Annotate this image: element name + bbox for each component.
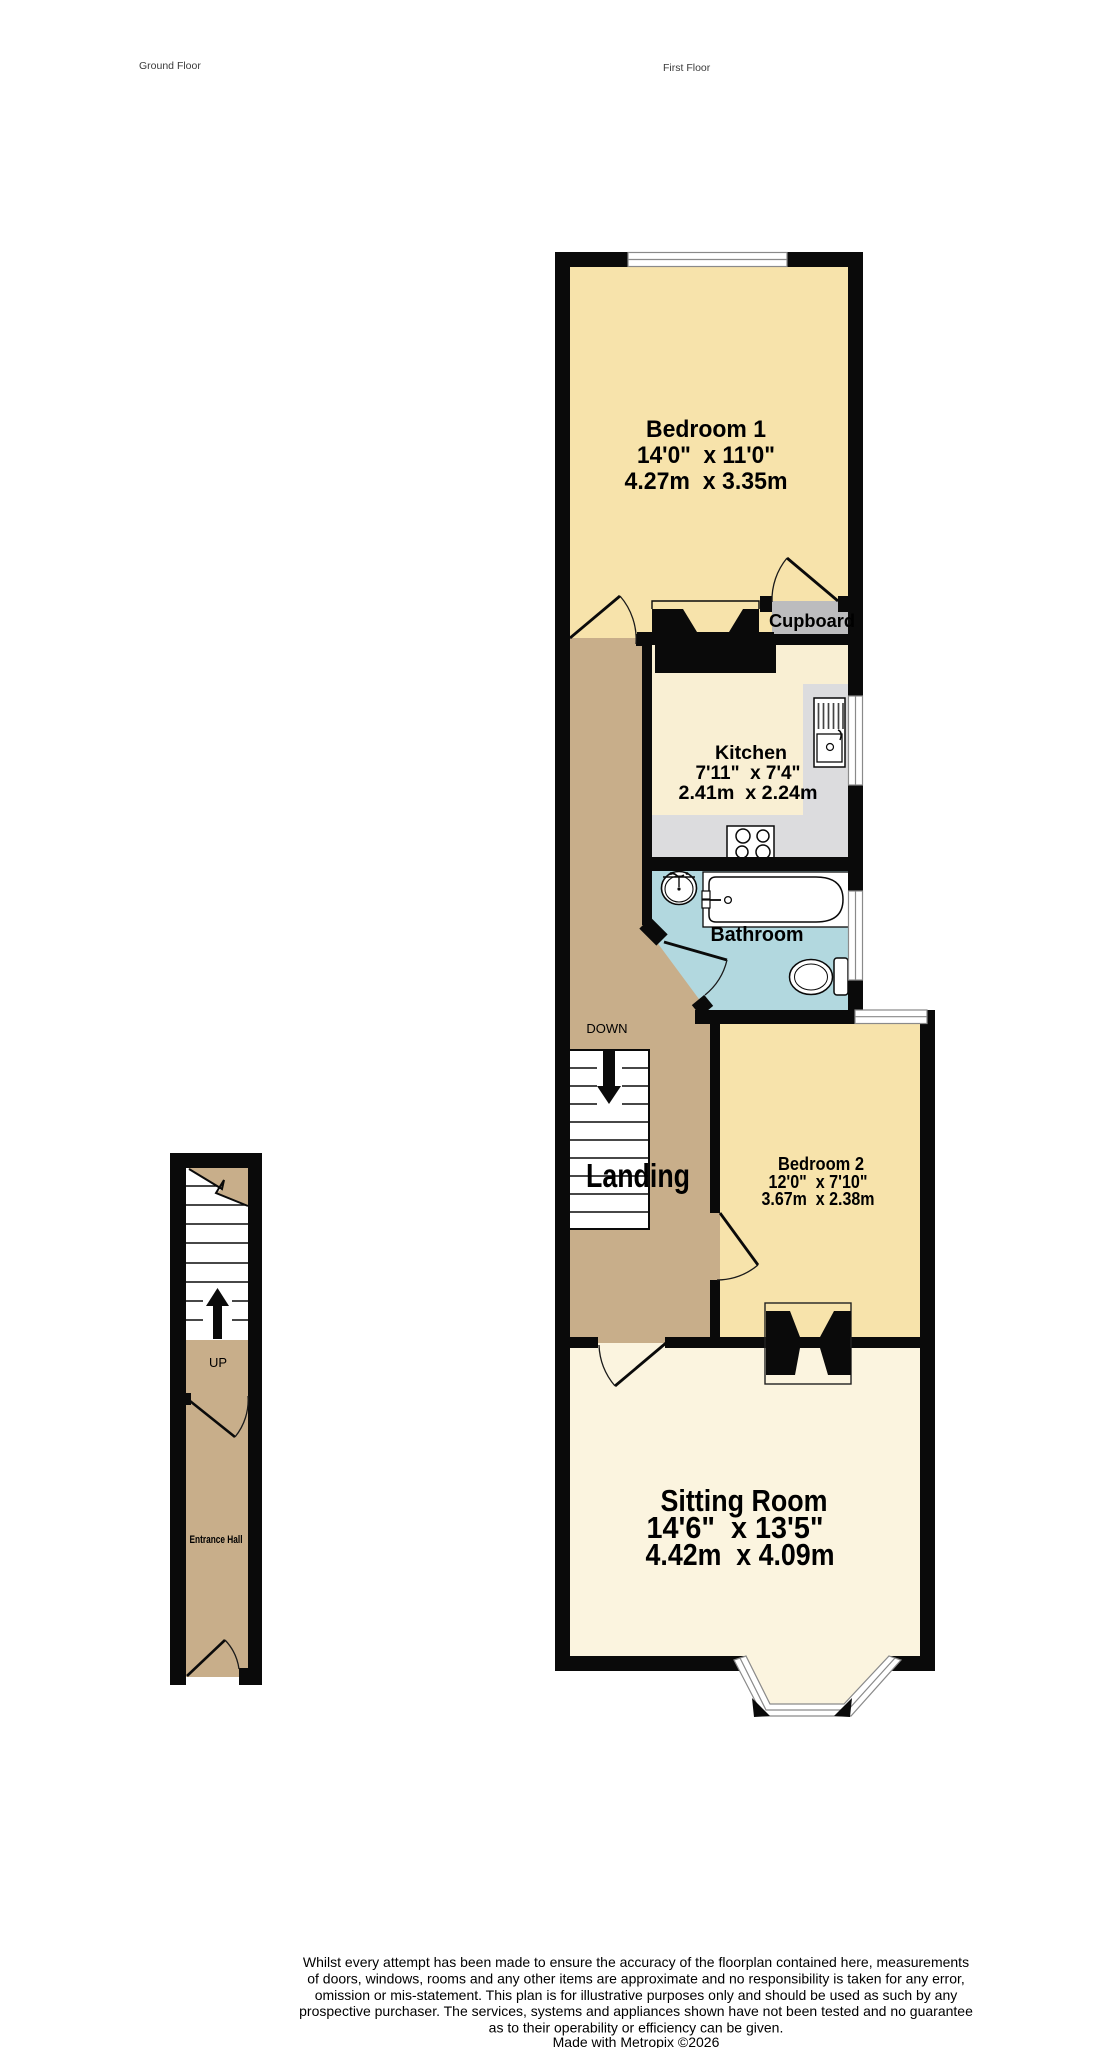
svg-text:prospective purchaser. The ser: prospective purchaser. The services, sys… [299,2003,973,2019]
svg-text:Kitchen: Kitchen [715,742,787,764]
svg-text:Cupboard: Cupboard [769,611,855,631]
svg-text:3.67m x 2.38m: 3.67m x 2.38m [762,1188,875,1209]
svg-text:Whilst every attempt has been: Whilst every attempt has been made to en… [303,1954,969,1970]
svg-text:omission or mis-statement. Thi: omission or mis-statement. This plan is … [315,1987,958,2003]
svg-text:Ground Floor: Ground Floor [139,60,201,72]
svg-text:4.27m x 3.35m: 4.27m x 3.35m [625,468,788,495]
svg-text:Bathroom: Bathroom [711,924,804,946]
svg-text:2.41m x 2.24m: 2.41m x 2.24m [679,782,818,804]
svg-text:Entrance Hall: Entrance Hall [190,1534,243,1546]
svg-text:UP: UP [209,1355,227,1370]
svg-text:7'11" x 7'4": 7'11" x 7'4" [696,762,801,784]
svg-text:Landing: Landing [586,1157,690,1194]
svg-text:of doors, windows, rooms and a: of doors, windows, rooms and any other i… [307,1970,965,1986]
svg-text:Made with Metropix ©2026: Made with Metropix ©2026 [553,2034,720,2048]
svg-text:Bedroom 1: Bedroom 1 [646,416,766,443]
svg-text:DOWN: DOWN [586,1021,627,1036]
svg-text:14'0" x 11'0": 14'0" x 11'0" [637,442,775,469]
svg-text:First Floor: First Floor [663,62,711,74]
svg-text:4.42m x 4.09m: 4.42m x 4.09m [646,1537,835,1572]
